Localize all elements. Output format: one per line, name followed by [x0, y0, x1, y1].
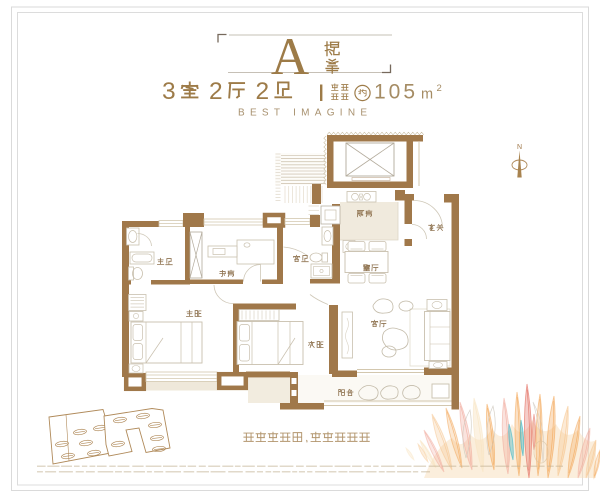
svg-text:3: 3 [162, 78, 176, 105]
svg-text:A: A [271, 28, 309, 86]
svg-text:m: m [421, 87, 433, 103]
svg-text:2: 2 [209, 78, 223, 105]
svg-text:2: 2 [256, 78, 270, 105]
svg-text:105: 105 [374, 81, 418, 104]
svg-text:N: N [517, 144, 522, 151]
svg-text:BEST IMAGINE: BEST IMAGINE [238, 108, 367, 119]
svg-text:2: 2 [437, 83, 442, 94]
